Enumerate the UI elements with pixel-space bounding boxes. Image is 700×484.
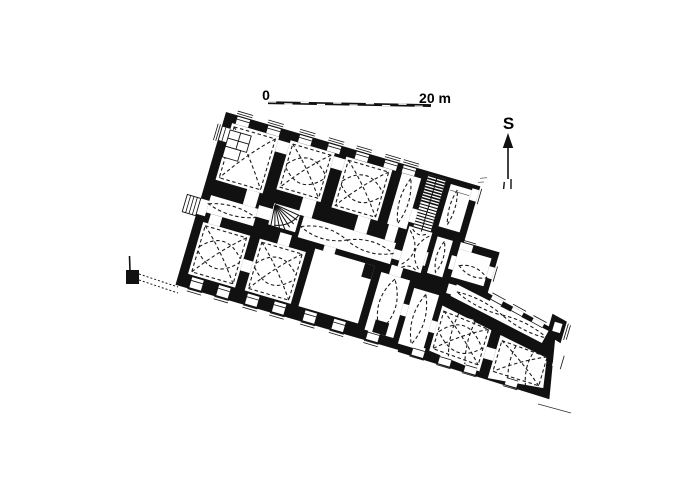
svg-text:0: 0 — [262, 87, 270, 103]
svg-text:S: S — [503, 114, 514, 133]
svg-text:20 m: 20 m — [419, 90, 451, 106]
